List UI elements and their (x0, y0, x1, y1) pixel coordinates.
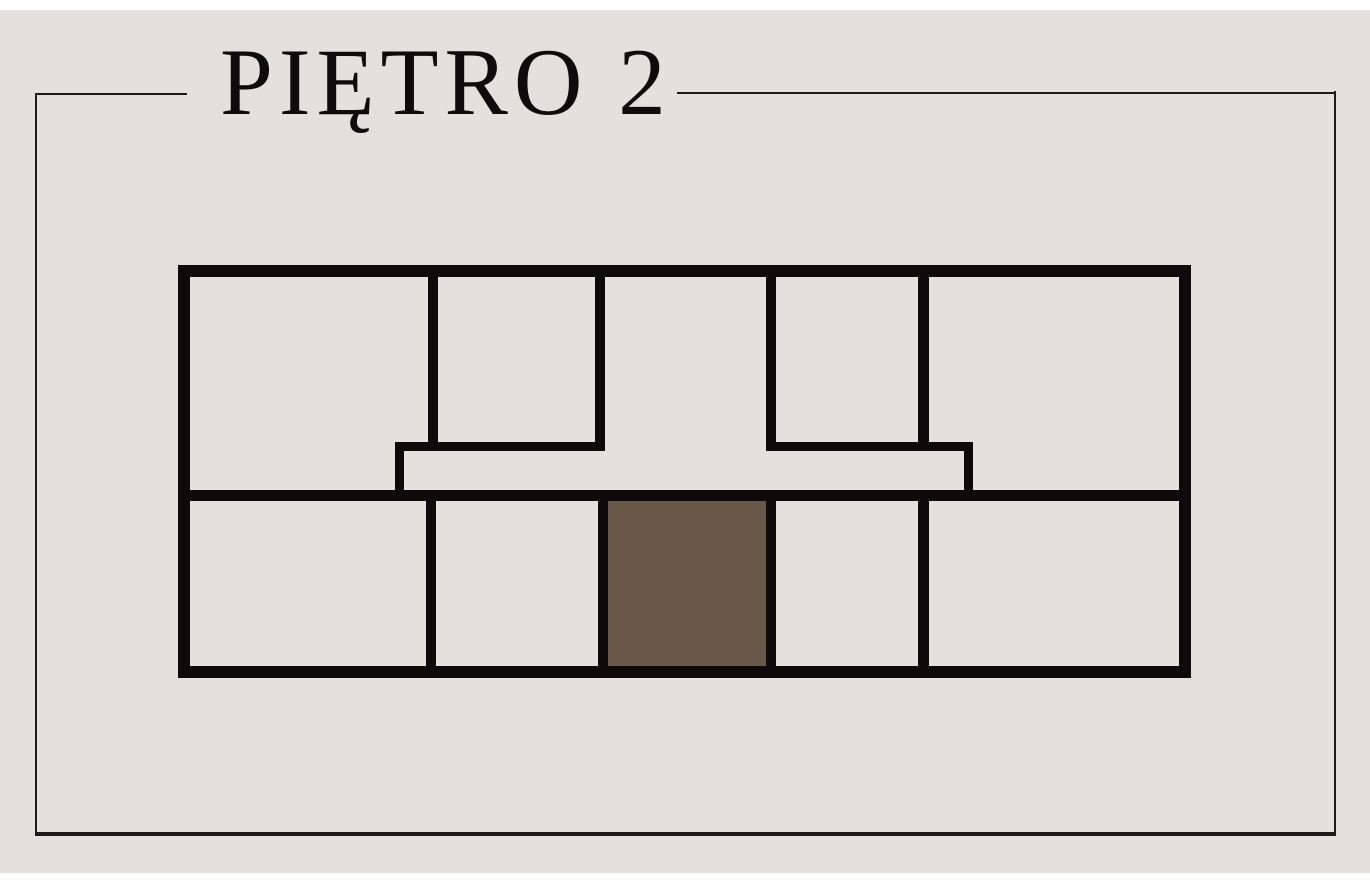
page: PIĘTRO 2 (0, 0, 1370, 890)
wall-bottom-divider-2 (598, 501, 608, 666)
wall-top-divider-1 (428, 277, 438, 451)
room-bottom-left-center[interactable] (436, 501, 598, 666)
frame-top-left-segment (35, 93, 187, 95)
frame-top-right-segment (677, 92, 1335, 94)
wall-bottom-divider-3 (766, 501, 776, 666)
corridor[interactable] (404, 451, 964, 490)
wall-top-divider-2 (595, 277, 605, 451)
wall-bottom-divider-4 (918, 501, 929, 666)
wall-outer-bottom (178, 666, 1191, 678)
wall-middle-divider (178, 490, 1191, 501)
wall-corridor-top-right (766, 442, 973, 451)
room-top-right-center[interactable] (776, 277, 918, 442)
wall-bottom-divider-1 (426, 501, 436, 666)
bottom-margin (0, 873, 1370, 890)
wall-corridor-top-left (395, 442, 605, 451)
wall-outer-right (1179, 265, 1191, 678)
frame-bottom-border (35, 832, 1336, 836)
floor-title: PIĘTRO 2 (220, 35, 672, 130)
floor-plan (178, 265, 1191, 678)
wall-outer-top (178, 265, 1191, 277)
room-bottom-right-center[interactable] (776, 501, 918, 666)
wall-top-divider-4 (918, 277, 929, 451)
room-top-left[interactable] (190, 277, 428, 490)
wall-top-divider-3 (766, 277, 776, 451)
room-bottom-right[interactable] (929, 501, 1179, 666)
room-bottom-center-highlighted[interactable] (608, 501, 766, 666)
room-bottom-left[interactable] (190, 501, 426, 666)
wall-outer-left (178, 265, 190, 678)
room-top-left-center[interactable] (438, 277, 595, 442)
top-margin (0, 0, 1370, 10)
frame-left-border (35, 93, 37, 834)
frame-right-border (1334, 91, 1336, 834)
